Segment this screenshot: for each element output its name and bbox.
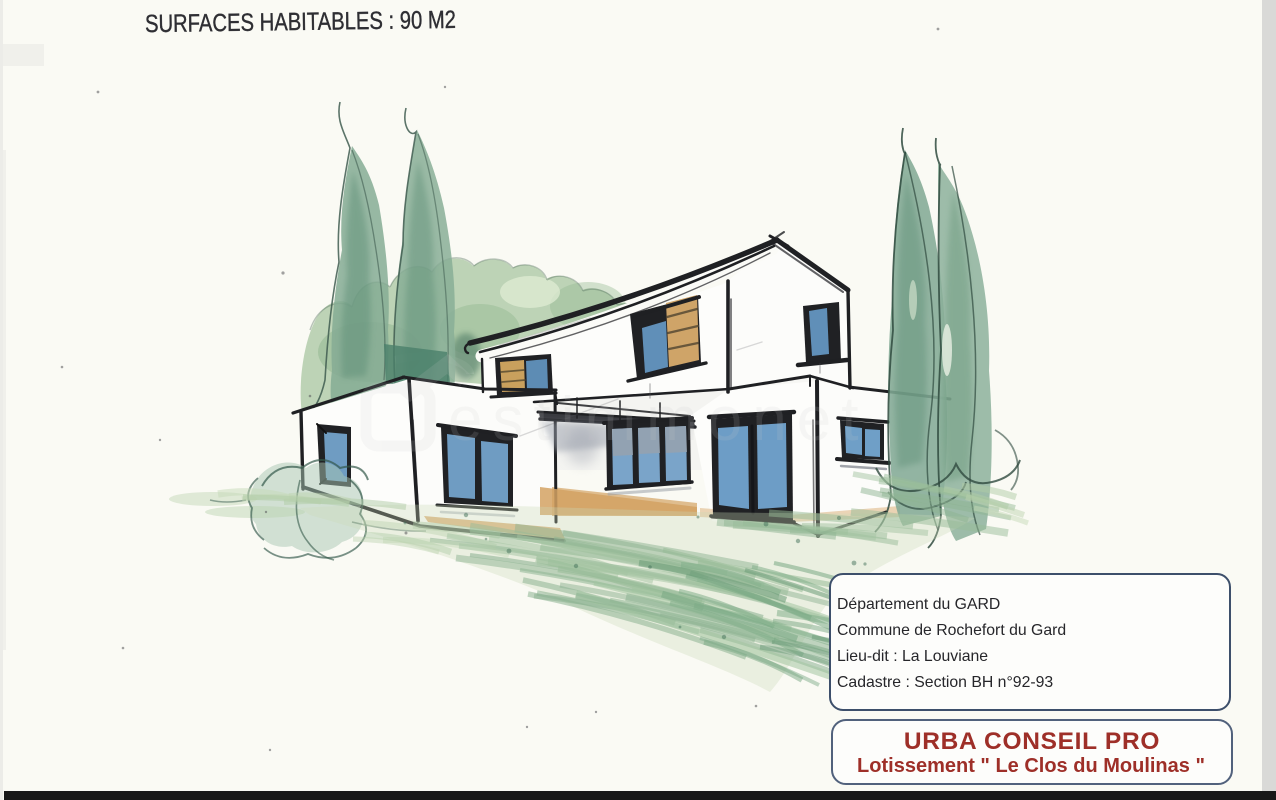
svg-text:Lieu-dit : La Louviane: Lieu-dit : La Louviane bbox=[837, 648, 988, 665]
svg-text:Cadastre : Section BH n°92-93: Cadastre : Section BH n°92-93 bbox=[837, 674, 1053, 691]
svg-text:Département du GARD: Département du GARD bbox=[837, 596, 1000, 613]
svg-text:URBA CONSEIL PRO: URBA CONSEIL PRO bbox=[904, 728, 1160, 755]
svg-text:SURFACES HABITABLES : 90 M2: SURFACES HABITABLES : 90 M2 bbox=[145, 6, 456, 38]
svg-text:Lotissement " Le Clos du Mouli: Lotissement " Le Clos du Moulinas " bbox=[857, 755, 1205, 777]
svg-text:estimmonet: estimmonet bbox=[448, 385, 868, 454]
svg-text:Commune de Rochefort du Gard: Commune de Rochefort du Gard bbox=[837, 622, 1066, 639]
